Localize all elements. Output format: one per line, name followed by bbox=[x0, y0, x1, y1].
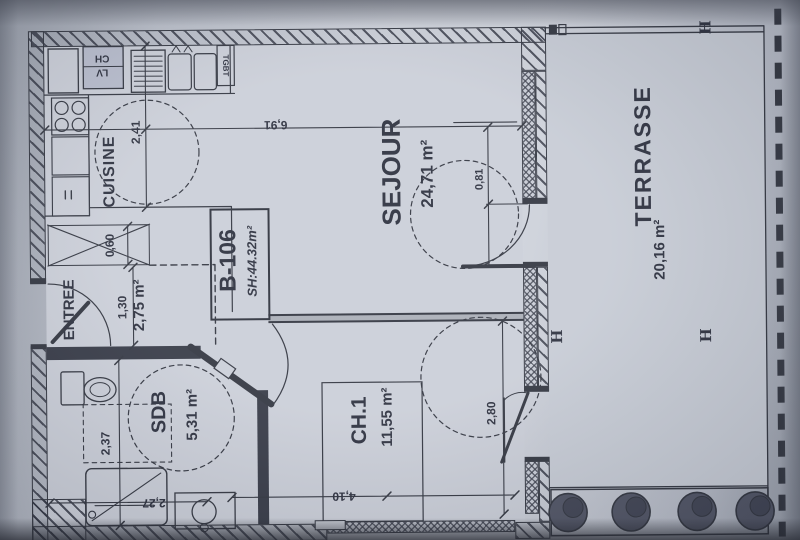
floor-plan: CUISINE SEJOUR 24,71 m² ENTREE 2,75 m² S… bbox=[0, 0, 800, 540]
room-label-cuisine: CUISINE bbox=[102, 136, 119, 208]
planter-bushes bbox=[549, 492, 774, 532]
scanned-floor-plan: CUISINE SEJOUR 24,71 m² ENTREE 2,75 m² S… bbox=[0, 0, 800, 540]
dim-ch1-depth: 2,80 bbox=[485, 401, 497, 424]
room-label-sdb: SDB bbox=[149, 391, 169, 433]
room-area-ch1: 11,55 m² bbox=[380, 387, 396, 446]
unit-id: B-106 bbox=[216, 229, 240, 292]
h-marker-3: H bbox=[698, 20, 713, 34]
tgbt-label: TGBT bbox=[221, 55, 229, 77]
dim-kitchen-depth: 2,41 bbox=[130, 121, 142, 144]
unit-surface: SH:44.32m² bbox=[245, 226, 259, 297]
room-area-sdb: 5,31 m² bbox=[185, 389, 200, 441]
ch-label: CH bbox=[95, 53, 110, 63]
plan-linework bbox=[0, 0, 800, 540]
room-area-sejour: 24,71 m² bbox=[418, 140, 436, 208]
room-area-entree: 2,75 m² bbox=[132, 279, 147, 331]
room-label-terrasse: TERRASSE bbox=[631, 85, 655, 226]
dim-sdb-depth: 2,37 bbox=[99, 432, 111, 455]
dim-entry-width: 1,30 bbox=[116, 296, 128, 319]
h-marker-2: H bbox=[699, 328, 714, 342]
h-marker-1: H bbox=[550, 329, 565, 343]
dim-closet-depth: 0,60 bbox=[104, 234, 116, 257]
dim-sdb-width: 2,27 bbox=[142, 497, 165, 509]
dim-door-width: 0,81 bbox=[475, 169, 486, 191]
room-label-entree: ENTREE bbox=[62, 279, 78, 340]
lv-label: LV bbox=[96, 67, 108, 77]
room-label-ch1: CH.1 bbox=[349, 396, 370, 444]
dim-ch1-width: 4,10 bbox=[332, 490, 355, 502]
room-area-terrasse: 20,16 m² bbox=[652, 220, 668, 280]
room-label-sejour: SEJOUR bbox=[378, 119, 405, 226]
dim-living-width: 6,91 bbox=[264, 119, 287, 131]
